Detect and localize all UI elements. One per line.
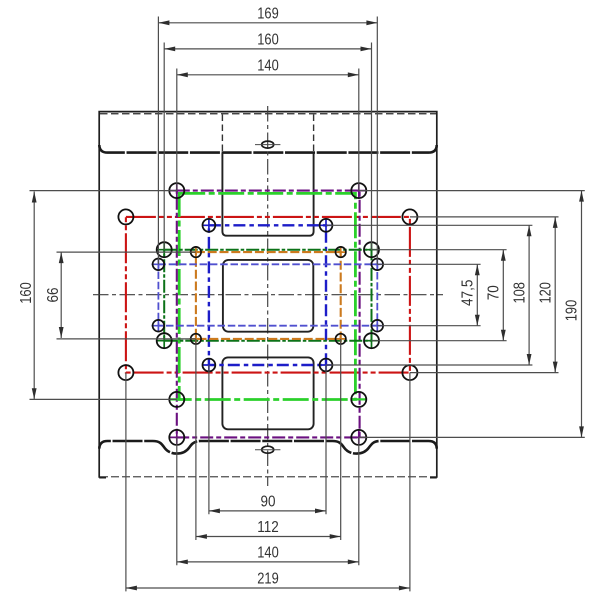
svg-text:120: 120 (537, 282, 554, 304)
svg-text:190: 190 (564, 300, 581, 322)
svg-text:140: 140 (257, 58, 279, 75)
svg-text:140: 140 (257, 545, 279, 562)
svg-text:108: 108 (511, 282, 528, 304)
svg-text:70: 70 (486, 285, 503, 300)
svg-text:90: 90 (261, 494, 276, 511)
svg-text:112: 112 (257, 519, 279, 536)
svg-text:169: 169 (257, 6, 279, 23)
svg-text:66: 66 (45, 287, 62, 302)
svg-text:47,5: 47,5 (460, 279, 477, 306)
svg-text:160: 160 (18, 282, 35, 304)
svg-text:219: 219 (257, 571, 279, 588)
svg-text:160: 160 (257, 32, 279, 49)
